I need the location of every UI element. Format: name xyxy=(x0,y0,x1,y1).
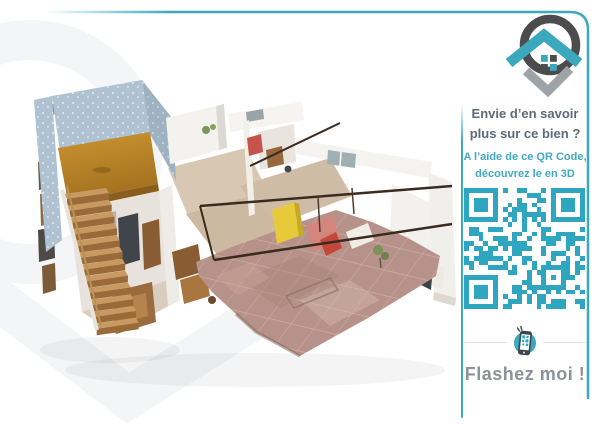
scan-cta-label: Flashez moi ! xyxy=(458,364,592,385)
qr-code xyxy=(464,188,585,309)
house-map-pin-logo xyxy=(500,14,592,102)
subheading-line-1: A l’aide de ce QR Code, xyxy=(460,149,590,166)
subheading-line-2: découvrez le en 3D xyxy=(460,166,590,183)
heading-line-1: Envie d’en savoir xyxy=(460,104,590,124)
smartphone-scan-icon xyxy=(507,324,543,360)
scan-divider xyxy=(464,324,586,360)
flyer-canvas: Envie d’en savoir plus sur ce bien ? A l… xyxy=(0,0,600,424)
divider-line-left xyxy=(464,342,507,343)
heading-line-2: plus sur ce bien ? xyxy=(460,124,590,144)
panel-subheading: A l’aide de ce QR Code, découvrez le en … xyxy=(460,149,590,182)
panel-heading: Envie d’en savoir plus sur ce bien ? xyxy=(460,104,590,143)
divider-line-right xyxy=(543,342,586,343)
